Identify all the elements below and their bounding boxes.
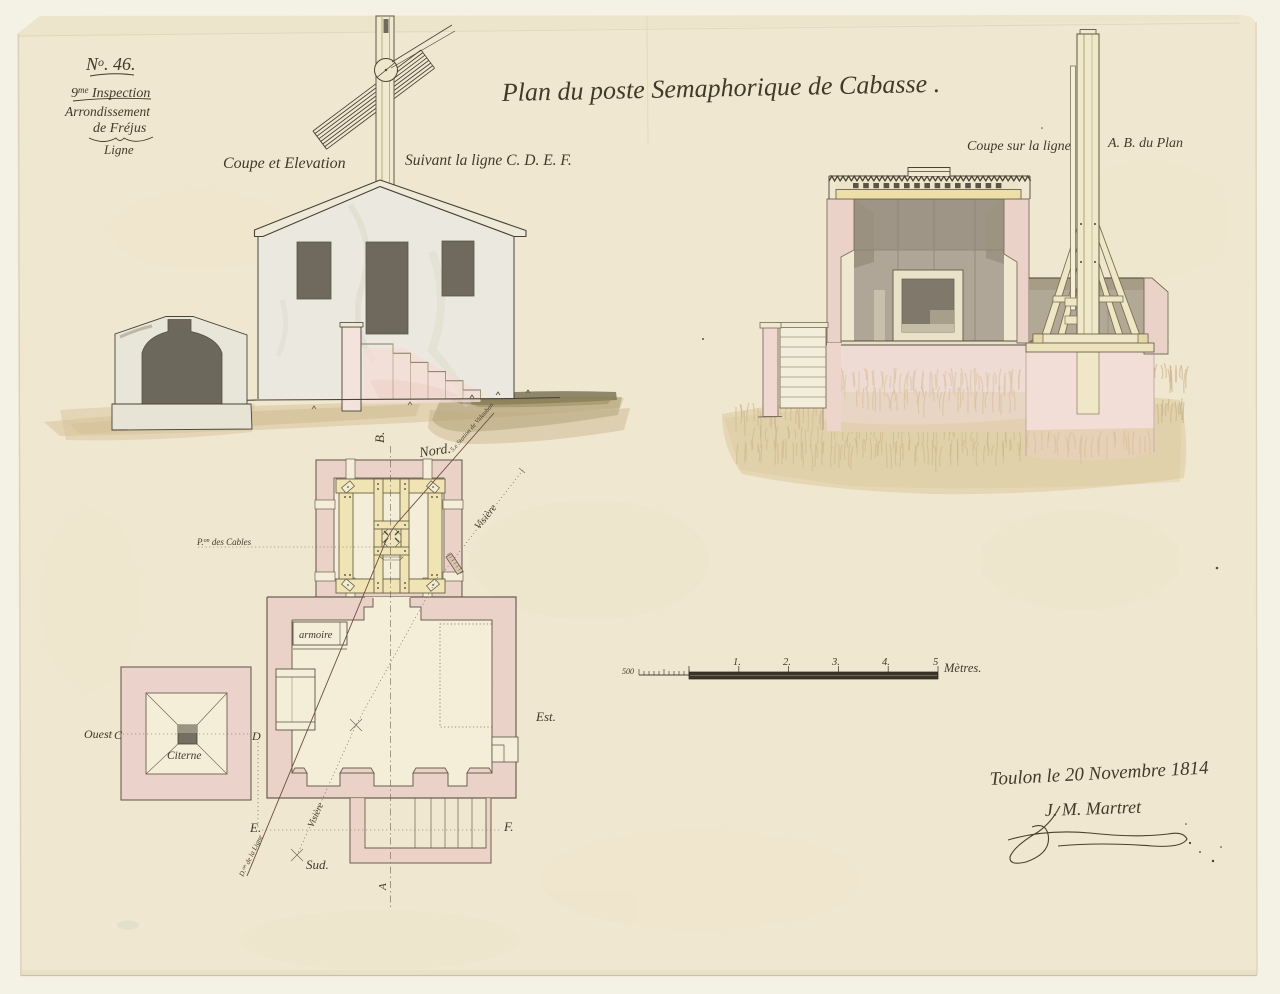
svg-text:1.: 1. [733, 657, 741, 668]
svg-text:E.: E. [249, 820, 261, 835]
svg-text:B.: B. [372, 432, 387, 443]
svg-text:Ligne: Ligne [103, 142, 134, 157]
svg-text:No. 46.: No. 46. [85, 54, 136, 74]
svg-text:Citerne: Citerne [167, 750, 202, 762]
svg-text:Ouest: Ouest [84, 727, 113, 741]
svg-text:500: 500 [622, 667, 634, 676]
svg-text:4.: 4. [882, 657, 890, 668]
svg-text:Arrondissement: Arrondissement [64, 104, 151, 119]
svg-text:A. B. du Plan: A. B. du Plan [1107, 136, 1183, 151]
svg-text:F.: F. [503, 819, 514, 834]
svg-text:Coupe sur la ligne: Coupe sur la ligne [967, 139, 1071, 154]
svg-text:C: C [114, 728, 123, 742]
svg-text:2.: 2. [783, 657, 791, 668]
svg-text:Sud.: Sud. [306, 857, 329, 872]
svg-text:Mètres.: Mètres. [943, 661, 981, 675]
svg-text:5: 5 [933, 657, 938, 668]
svg-text:A: A [377, 883, 389, 891]
svg-text:Suivant la ligne C. D. E. F.: Suivant la ligne C. D. E. F. [405, 152, 572, 169]
svg-text:armoire: armoire [299, 630, 333, 641]
svg-text:Est.: Est. [535, 709, 556, 724]
svg-text:3.: 3. [831, 657, 840, 668]
svg-text:de Fréjus: de Fréjus [93, 121, 147, 136]
svg-text:D: D [251, 729, 261, 743]
svg-text:Coupe et Elevation: Coupe et Elevation [223, 155, 346, 172]
